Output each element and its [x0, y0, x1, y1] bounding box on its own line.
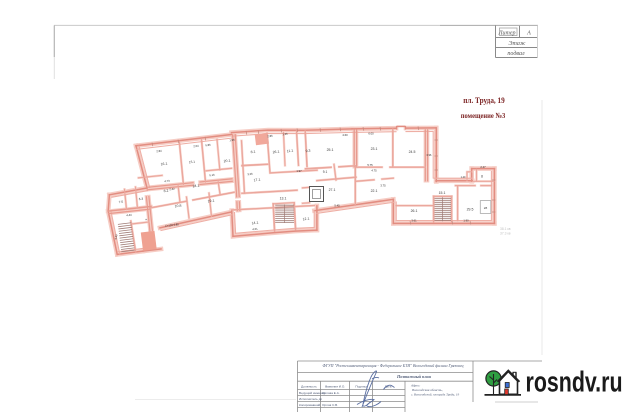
- svg-text:5.45: 5.45: [334, 204, 340, 208]
- svg-text:Этаж: Этаж: [509, 41, 526, 47]
- svg-text:10.8: 10.8: [174, 204, 181, 209]
- svg-text:9.1: 9.1: [323, 170, 328, 174]
- svg-text:Орлов С.В.: Орлов С.В.: [322, 403, 338, 407]
- svg-text:24.1: 24.1: [192, 184, 199, 189]
- svg-text:26.1: 26.1: [272, 150, 279, 155]
- svg-text:16.1: 16.1: [160, 162, 167, 167]
- svg-text:Орлова Е.А.: Орлова Е.А.: [322, 391, 340, 395]
- svg-text:Копировавший: Копировавший: [299, 403, 321, 407]
- svg-text:19.1: 19.1: [207, 199, 214, 204]
- svg-text:5.86: 5.86: [205, 143, 211, 148]
- svg-text:25.1: 25.1: [327, 148, 334, 152]
- svg-text:Адрес:: Адрес:: [410, 384, 420, 388]
- svg-text:2.86: 2.86: [267, 134, 273, 139]
- svg-text:подвал: подвал: [507, 50, 525, 57]
- svg-text:4.44: 4.44: [126, 213, 132, 218]
- svg-text:2.47: 2.47: [480, 165, 486, 169]
- svg-text:1.36: 1.36: [282, 132, 288, 137]
- svg-text:Исполнитель др: Исполнитель др: [299, 397, 322, 401]
- svg-text:rosndv.ru: rosndv.ru: [526, 367, 623, 399]
- svg-text:22.1: 22.1: [371, 189, 378, 193]
- svg-text:13.1: 13.1: [280, 197, 287, 201]
- svg-text:11.1: 11.1: [286, 149, 293, 154]
- svg-text:4.61: 4.61: [252, 227, 258, 232]
- svg-text:15.1: 15.1: [439, 191, 446, 195]
- svg-text:Фамилия И.О.: Фамилия И.О.: [325, 384, 345, 388]
- svg-text:Литер: Литер: [497, 31, 515, 37]
- svg-text:29.5: 29.5: [467, 208, 474, 212]
- svg-text:ФГУП "Ростехинвентаризация - Ф: ФГУП "Ростехинвентаризация - Федеральное…: [323, 363, 464, 368]
- svg-text:8.2: 8.2: [163, 189, 168, 194]
- svg-text:5.75: 5.75: [367, 163, 373, 167]
- svg-text:12.1: 12.1: [302, 217, 309, 222]
- svg-text:38.1 кв: 38.1 кв: [500, 227, 511, 231]
- svg-text:Поэтажный план: Поэтажный план: [396, 374, 431, 379]
- svg-text:8.1: 8.1: [250, 150, 255, 155]
- svg-text:4.73: 4.73: [164, 179, 170, 184]
- svg-text:4.60: 4.60: [342, 133, 348, 137]
- svg-text:24.5: 24.5: [409, 150, 416, 154]
- svg-text:2.42: 2.42: [169, 187, 175, 192]
- svg-text:26.1: 26.1: [411, 209, 418, 213]
- svg-text:2.84: 2.84: [156, 149, 162, 154]
- svg-text:8: 8: [481, 175, 483, 179]
- svg-text:20.1: 20.1: [223, 159, 230, 164]
- svg-text:1.40: 1.40: [461, 176, 466, 179]
- svg-text:15.1: 15.1: [189, 160, 196, 165]
- svg-text:6.3: 6.3: [139, 197, 144, 202]
- svg-text:23.1: 23.1: [371, 147, 378, 151]
- svg-text:37.3 кв: 37.3 кв: [500, 232, 511, 236]
- svg-text:27.1: 27.1: [329, 188, 336, 192]
- svg-text:пл. Труда, 19: пл. Труда, 19: [463, 96, 505, 105]
- svg-text:2.04: 2.04: [193, 144, 199, 149]
- svg-text:3.26: 3.26: [247, 172, 253, 177]
- svg-text:6.00: 6.00: [368, 132, 374, 136]
- svg-text:9.3: 9.3: [305, 149, 310, 154]
- svg-text:1.96: 1.96: [229, 138, 235, 143]
- svg-text:1.97: 1.97: [296, 169, 302, 173]
- svg-text:28: 28: [484, 206, 488, 210]
- svg-text:0.96: 0.96: [427, 154, 432, 157]
- svg-text:3.61: 3.61: [411, 219, 417, 223]
- svg-text:5.16: 5.16: [209, 173, 215, 178]
- svg-text:17.1: 17.1: [253, 178, 260, 183]
- svg-text:4.75: 4.75: [371, 169, 377, 173]
- svg-text:помещение №3: помещение №3: [461, 111, 506, 120]
- svg-text:А: А: [526, 31, 531, 37]
- svg-text:1.90: 1.90: [463, 219, 469, 223]
- svg-text:7.5: 7.5: [119, 200, 124, 205]
- svg-text:3.75: 3.75: [380, 184, 386, 188]
- svg-text:Должность: Должность: [301, 384, 317, 388]
- svg-text:Подпись: Подпись: [355, 384, 368, 388]
- svg-text:14.1: 14.1: [251, 221, 258, 226]
